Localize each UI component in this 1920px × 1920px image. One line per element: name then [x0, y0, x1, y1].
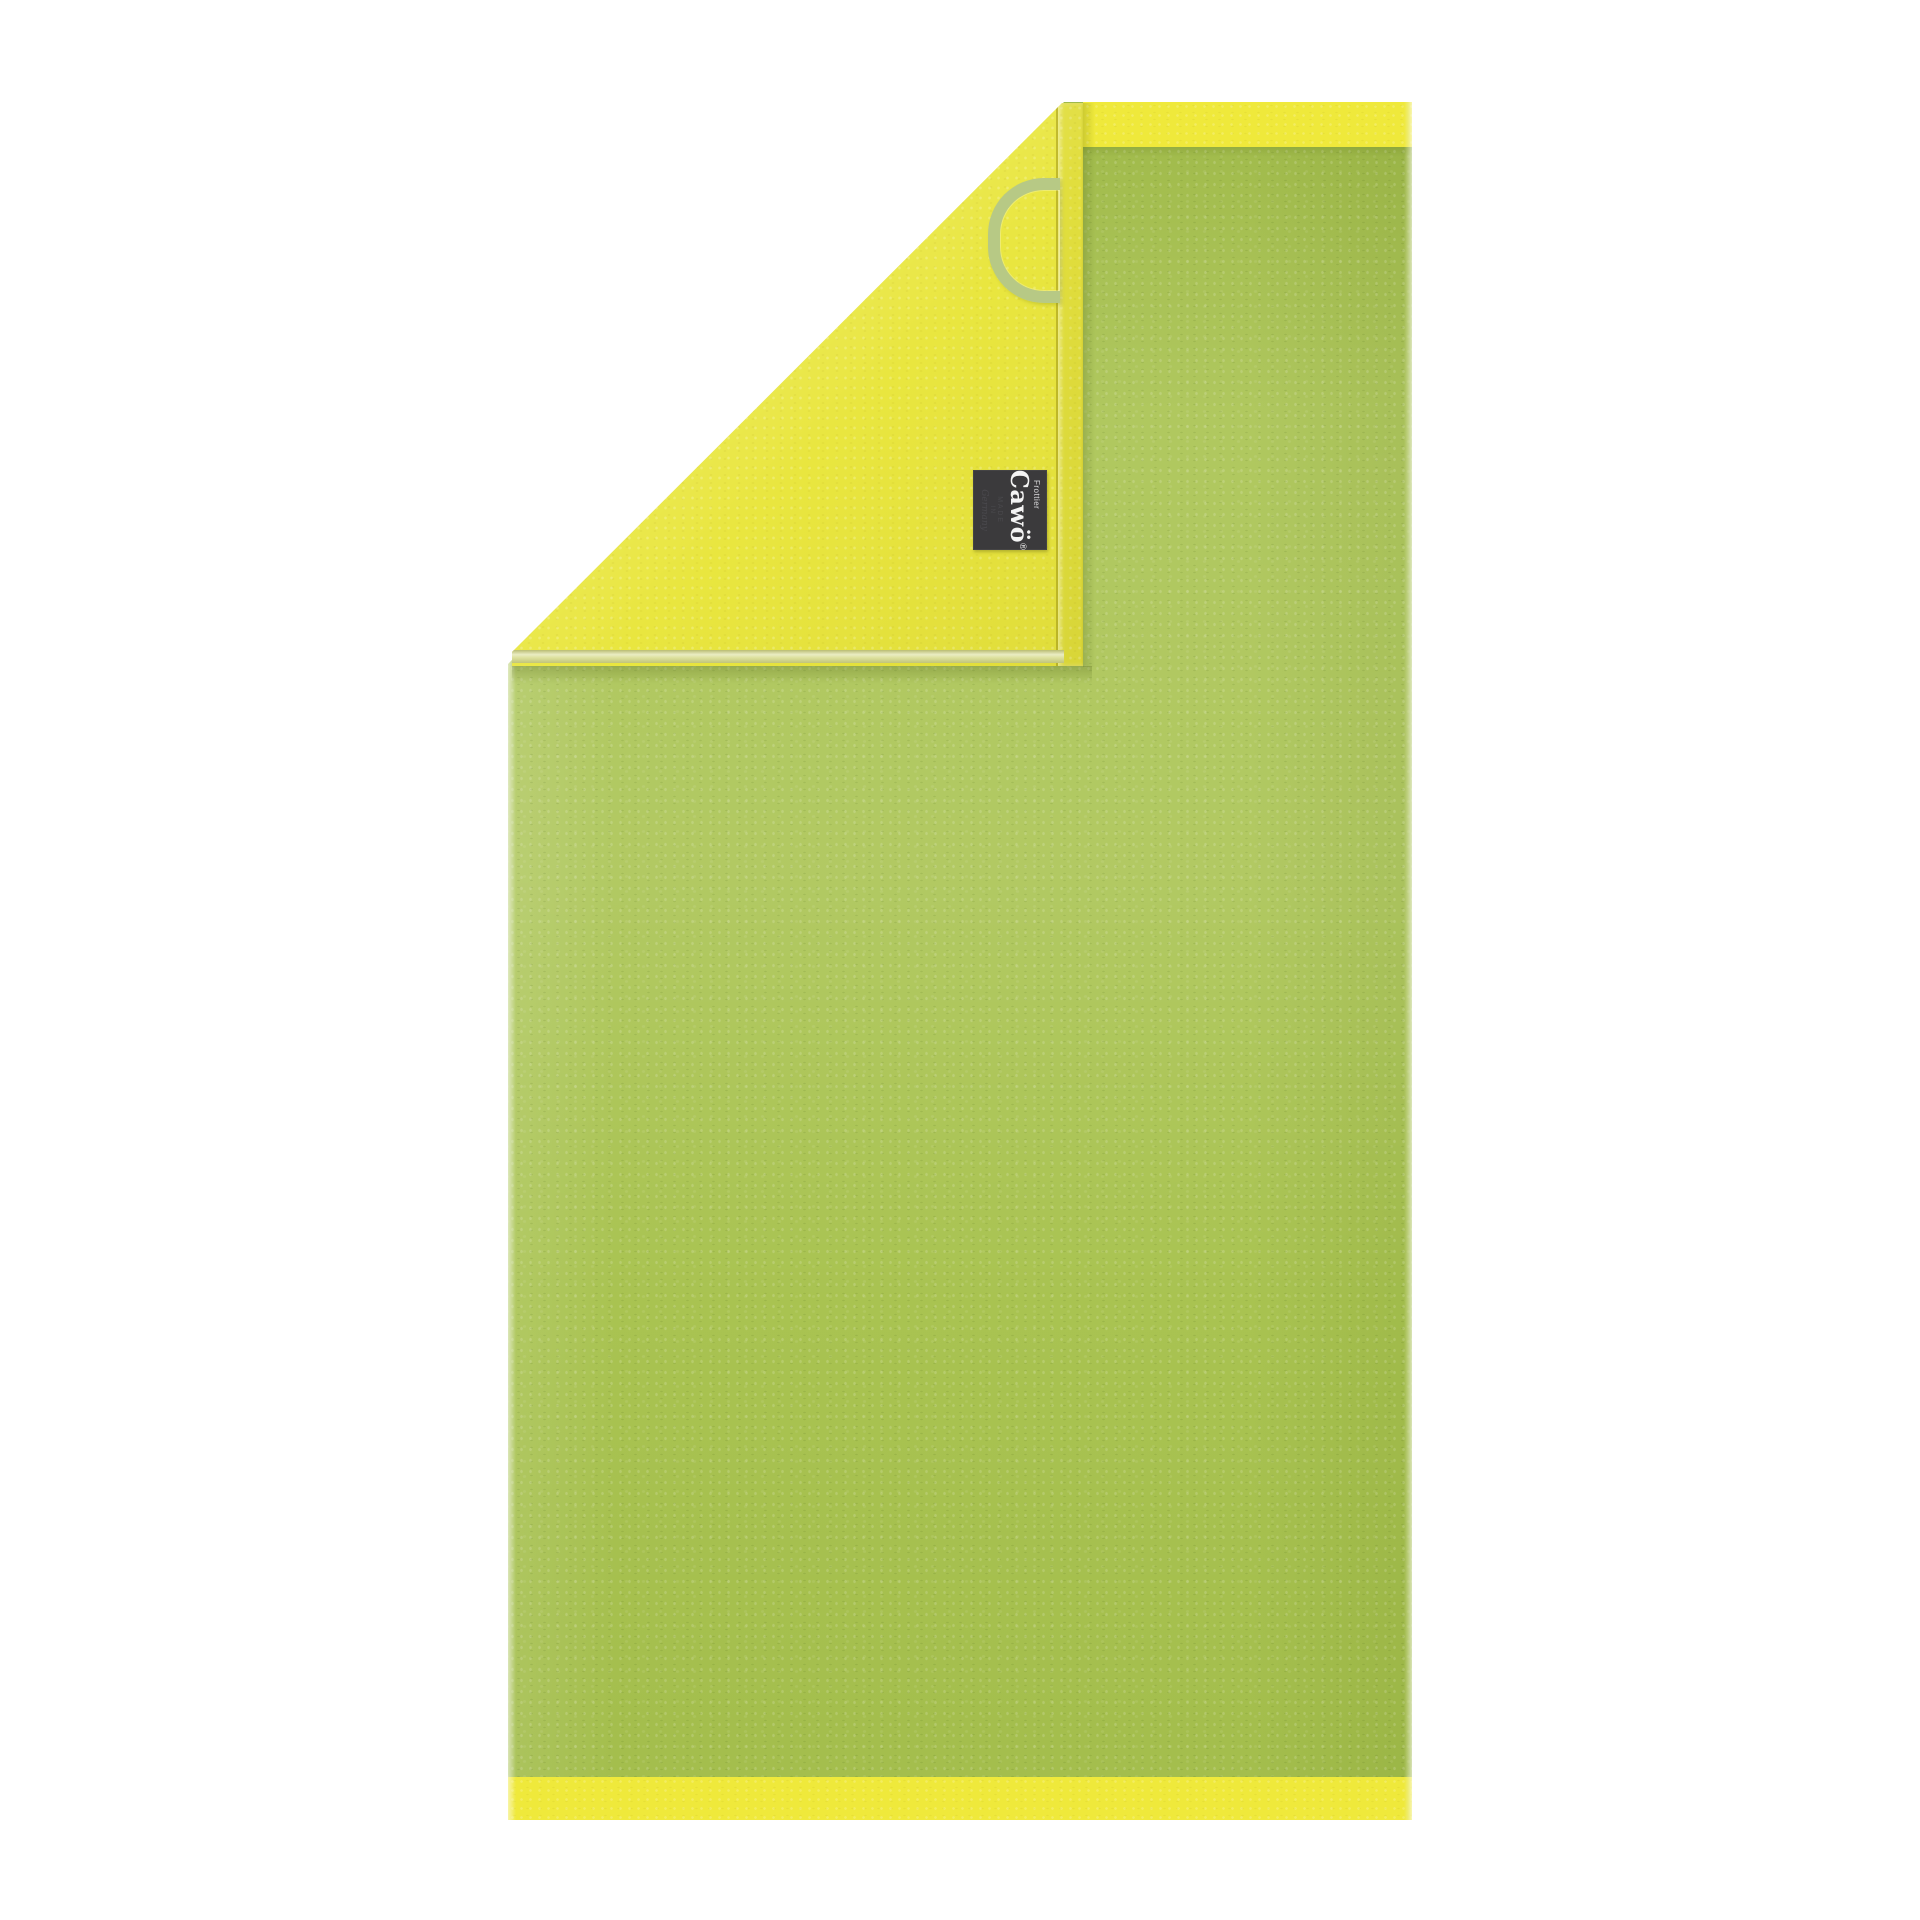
towel-bottom-border-band: [508, 1777, 1412, 1820]
brand-label-text: Frottier Cawö® MADE IN Germany: [973, 470, 1047, 550]
origin-line-1: MADE: [997, 489, 1004, 531]
folded-corner-drop-shadow: [512, 666, 1092, 684]
origin-line-2: IN: [990, 489, 996, 531]
origin-text: MADE IN Germany: [980, 489, 1004, 531]
product-image-canvas: Frottier Cawö® MADE IN Germany: [0, 0, 1920, 1920]
hanging-loop: [988, 178, 1060, 303]
towel-top-border-band: [1083, 102, 1412, 147]
brand-name: Cawö®: [1008, 470, 1032, 550]
hem-ribbon: [512, 650, 1064, 663]
right-edge-highlight: [1404, 102, 1412, 1820]
origin-line-3: Germany: [980, 489, 989, 531]
registered-mark: ®: [1019, 543, 1029, 550]
top-band-shadow: [1083, 147, 1412, 157]
fold-edge-shadow: [1083, 103, 1095, 667]
fold-hem-strip: [1056, 103, 1085, 666]
brand-label: Frottier Cawö® MADE IN Germany: [973, 470, 1047, 550]
